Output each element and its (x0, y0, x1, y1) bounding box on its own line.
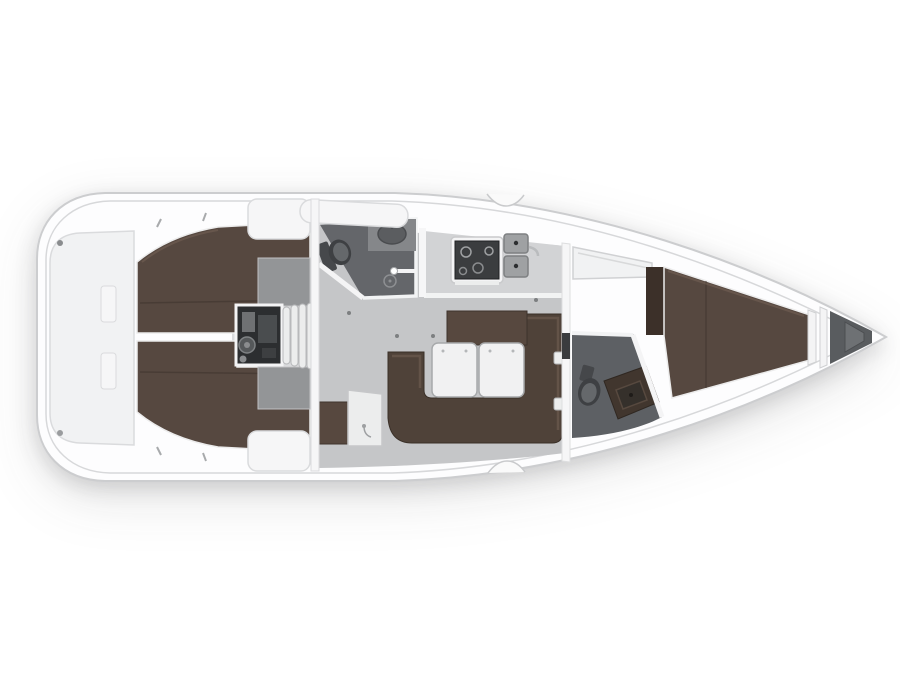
sink-lower-drain (514, 264, 518, 268)
step-1 (283, 307, 290, 364)
fwd-vanity-drain (629, 393, 633, 397)
step-2 (291, 305, 298, 366)
engine-pulley-core (244, 342, 250, 348)
nav-table (348, 390, 382, 446)
galley-counter-edge (424, 293, 565, 298)
leaf-hinge-2 (465, 350, 468, 353)
swim-platform (50, 231, 134, 445)
forward-head-top-wall (572, 333, 633, 335)
aft-shelf-port (258, 258, 310, 306)
table-leaf-right (479, 343, 524, 397)
aft-bulkhead (311, 199, 319, 471)
floor-pull-1 (347, 311, 351, 315)
transom-step-lower (101, 353, 116, 389)
forward-bulkhead (562, 243, 570, 462)
stern-fitting-top (57, 240, 63, 246)
floorplan-svg (0, 0, 900, 675)
bow-bulkhead-1 (808, 310, 816, 365)
engine-compartment (236, 305, 282, 365)
leaf-hinge-3 (489, 350, 492, 353)
aft-head-door-handle (391, 268, 398, 275)
aft-locker-starboard (248, 431, 310, 471)
sink-upper-drain (514, 241, 518, 245)
transom-step-upper (101, 286, 116, 322)
fwd-wardrobe (646, 267, 664, 335)
stove-handle (455, 281, 499, 285)
table-leaf-left (432, 343, 477, 397)
floor-pull-2 (395, 334, 399, 338)
engine-part-a (242, 312, 255, 332)
galley-end-panel (419, 228, 426, 297)
nav-lamp-head (362, 424, 366, 428)
aft-locker-port (248, 199, 310, 239)
floor-pull-4 (534, 298, 538, 302)
leaf-hinge-4 (512, 350, 515, 353)
bow-bulkhead-2 (820, 307, 827, 368)
stern-fitting-bottom (57, 430, 63, 436)
floor-pull-3 (431, 334, 435, 338)
step-3 (299, 304, 306, 368)
shower-drain-dot (389, 280, 392, 283)
engine-cap (240, 356, 247, 363)
engine-part-b (258, 315, 277, 343)
engine-part-c (262, 348, 276, 358)
aft-shelf-starboard (258, 367, 310, 409)
leaf-hinge-1 (442, 350, 445, 353)
table-top (447, 311, 527, 345)
transom-platform (50, 231, 134, 445)
companionway-steps (283, 303, 314, 369)
boat-floorplan-canvas (0, 0, 900, 675)
forward-cabin-doorway (562, 333, 570, 359)
